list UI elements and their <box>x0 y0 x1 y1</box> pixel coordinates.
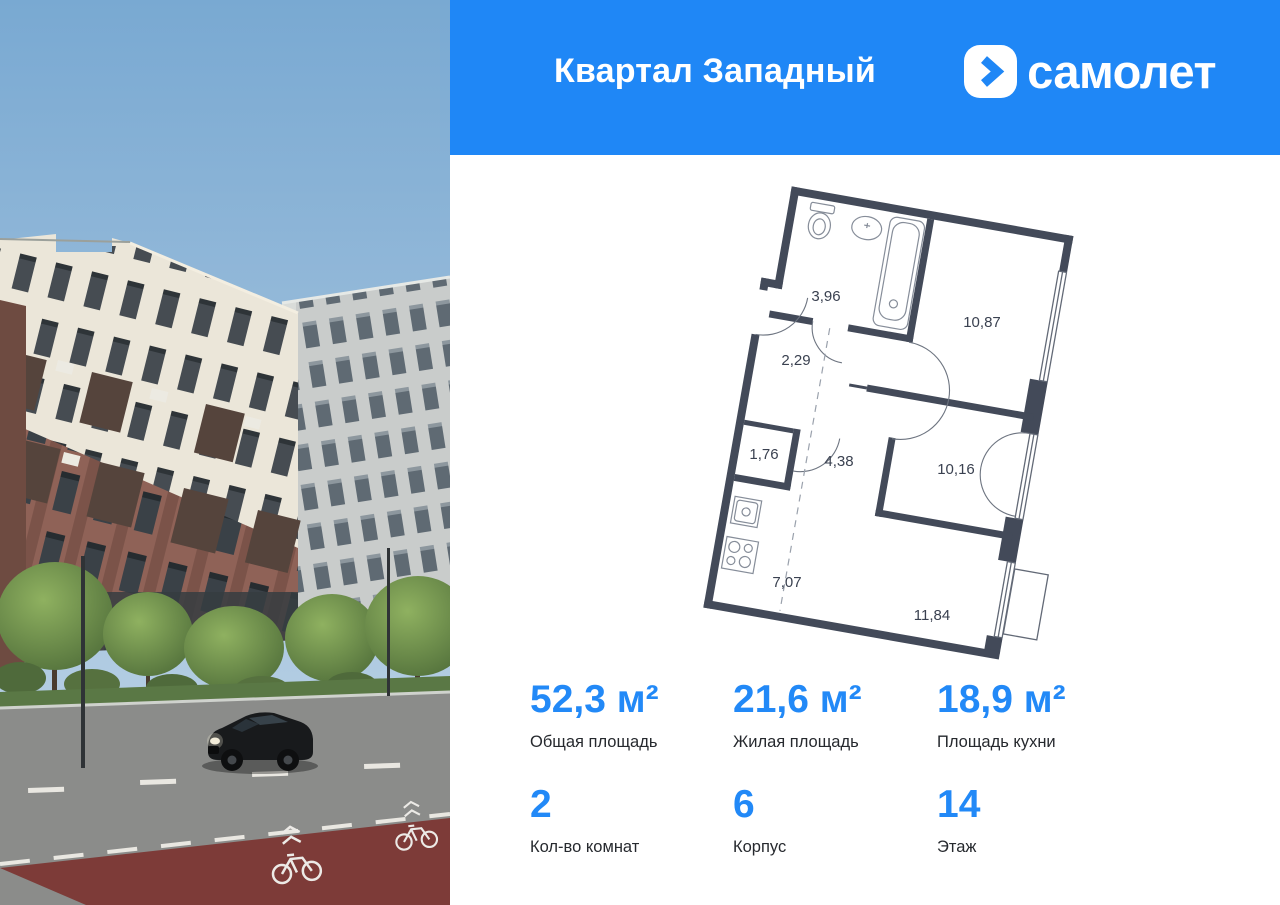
stat-floor: 14 Этаж <box>937 785 1260 857</box>
listing-card: Квартал Западный самолет <box>0 0 1280 905</box>
stat-label: Кол-во комнат <box>530 838 733 857</box>
stat-living-area: 21,6 м² Жилая площадь <box>733 680 937 752</box>
stat-label: Жилая площадь <box>733 733 937 752</box>
stat-rooms-count: 2 Кол-во комнат <box>530 785 733 857</box>
stat-building: 6 Корпус <box>733 785 937 857</box>
brand-logo: самолет <box>964 45 1216 98</box>
header: Квартал Западный самолет <box>450 0 1280 155</box>
room-area-label-bathroom: 3,96 <box>811 288 840 305</box>
stat-value: 14 <box>937 785 1260 825</box>
room-area-label-hall: 2,29 <box>781 352 810 369</box>
samolet-logo-icon <box>964 45 1017 98</box>
project-title: Квартал Западный <box>554 52 876 91</box>
stove-icon <box>721 537 758 574</box>
stat-label: Общая площадь <box>530 733 733 752</box>
toilet-icon <box>805 202 835 241</box>
stat-label: Площадь кухни <box>937 733 1260 752</box>
room-area-label-corridor: 4,38 <box>824 453 853 470</box>
room-area-label-storage: 1,76 <box>749 446 778 463</box>
building-photo <box>0 0 450 905</box>
stat-value: 52,3 м² <box>530 680 733 720</box>
stat-value: 6 <box>733 785 937 825</box>
kitchen-sink-icon <box>730 496 761 527</box>
chevron-right-icon <box>964 45 1017 98</box>
windows <box>993 271 1068 638</box>
room-area-label-living: 11,84 <box>914 607 950 624</box>
stat-kitchen-area: 18,9 м² Площадь кухни <box>937 680 1260 752</box>
stat-value: 18,9 м² <box>937 680 1260 720</box>
floor-plan: 3,96 2,29 10,87 1,76 4,38 10,16 7,07 11,… <box>660 170 1130 680</box>
street-photo-art <box>0 0 450 905</box>
stat-total-area: 52,3 м² Общая площадь <box>530 680 733 752</box>
apartment-stats: 52,3 м² Общая площадь 21,6 м² Жилая площ… <box>530 680 1260 857</box>
sink-icon <box>850 214 884 242</box>
brand-name: самолет <box>1027 48 1216 95</box>
stat-value: 2 <box>530 785 733 825</box>
room-area-label-kitchen: 7,07 <box>772 574 801 591</box>
floor-plan-drawing: 3,96 2,29 10,87 1,76 4,38 10,16 7,07 11,… <box>660 170 1130 680</box>
room-area-label-bedroom: 10,87 <box>963 314 1001 331</box>
room-area-label-room: 10,16 <box>937 461 975 478</box>
stat-label: Этаж <box>937 838 1260 857</box>
stat-label: Корпус <box>733 838 937 857</box>
stat-value: 21,6 м² <box>733 680 937 720</box>
